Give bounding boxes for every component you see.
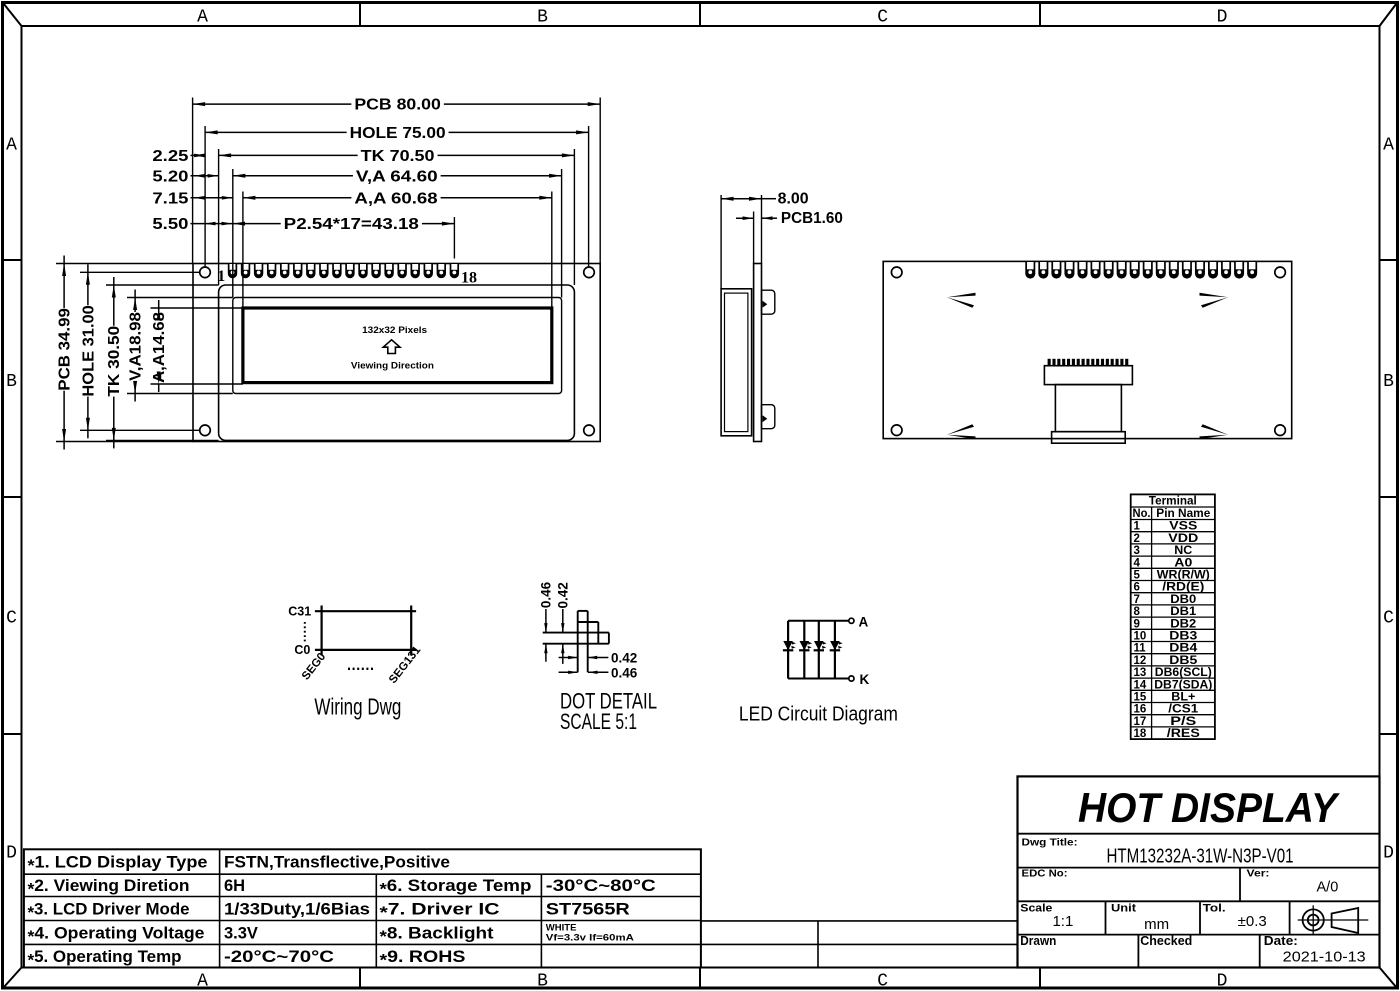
svg-text:HTM13232A-31W-N3P-V01: HTM13232A-31W-N3P-V01 bbox=[1107, 846, 1294, 868]
svg-text:16: 16 bbox=[1134, 704, 1147, 716]
svg-text:17: 17 bbox=[1134, 716, 1147, 728]
svg-text:11: 11 bbox=[1134, 643, 1147, 655]
svg-text:/RES: /RES bbox=[1167, 728, 1200, 740]
svg-text:LED Circuit Diagram: LED Circuit Diagram bbox=[739, 704, 898, 726]
svg-text:NC: NC bbox=[1174, 545, 1192, 557]
svg-text:2021-10-13: 2021-10-13 bbox=[1283, 949, 1366, 966]
svg-text:Scale: Scale bbox=[1020, 902, 1052, 914]
svg-text:C: C bbox=[1383, 609, 1394, 629]
svg-text:1/33Duty,1/6Bias: 1/33Duty,1/6Bias bbox=[224, 900, 370, 918]
svg-text:4: 4 bbox=[1134, 557, 1141, 569]
svg-text:K: K bbox=[860, 672, 870, 687]
svg-text:Ver:: Ver: bbox=[1247, 868, 1270, 880]
svg-text:132x32 Pixels: 132x32 Pixels bbox=[362, 325, 427, 336]
svg-text:A/0: A/0 bbox=[1317, 880, 1339, 896]
svg-text:/CS1: /CS1 bbox=[1168, 704, 1199, 716]
svg-text:0.46: 0.46 bbox=[539, 581, 554, 608]
svg-text:EDC No:: EDC No: bbox=[1022, 868, 1068, 880]
svg-text:14: 14 bbox=[1134, 679, 1147, 691]
svg-text:15: 15 bbox=[1134, 692, 1147, 704]
svg-text:DB0: DB0 bbox=[1170, 594, 1196, 606]
svg-text:B: B bbox=[537, 8, 548, 28]
svg-text:TK 70.50: TK 70.50 bbox=[361, 148, 435, 165]
svg-text:D: D bbox=[1217, 972, 1228, 991]
svg-text:A: A bbox=[197, 8, 208, 28]
svg-text:18: 18 bbox=[1134, 728, 1147, 740]
svg-text:PCB 34.99: PCB 34.99 bbox=[57, 308, 74, 391]
svg-text:5.50: 5.50 bbox=[152, 216, 188, 233]
svg-text:10: 10 bbox=[1134, 631, 1147, 643]
svg-text:ST7565R: ST7565R bbox=[546, 900, 630, 918]
svg-text:PCB1.60: PCB1.60 bbox=[781, 210, 843, 227]
svg-text:1: 1 bbox=[1134, 521, 1141, 533]
svg-text:B: B bbox=[537, 972, 548, 991]
svg-text:3: 3 bbox=[1134, 545, 1140, 557]
svg-text:Dwg Title:: Dwg Title: bbox=[1022, 837, 1078, 849]
svg-text:C: C bbox=[6, 609, 17, 629]
svg-text:Date:: Date: bbox=[1264, 934, 1298, 948]
svg-text:DB3: DB3 bbox=[1169, 631, 1197, 643]
svg-text:FSTN,Transflective,Positive: FSTN,Transflective,Positive bbox=[224, 854, 450, 872]
svg-text:6H: 6H bbox=[224, 877, 245, 895]
svg-text:VDD: VDD bbox=[1168, 533, 1198, 545]
svg-text:12: 12 bbox=[1134, 655, 1147, 667]
svg-text:B: B bbox=[1383, 372, 1394, 392]
svg-text:1:1: 1:1 bbox=[1052, 913, 1073, 930]
svg-text:C: C bbox=[877, 972, 888, 991]
svg-text:DB4: DB4 bbox=[1169, 643, 1198, 655]
svg-text:7.15: 7.15 bbox=[152, 190, 188, 207]
svg-text:HOT DISPLAY: HOT DISPLAY bbox=[1078, 784, 1340, 831]
svg-text:P/S: P/S bbox=[1170, 716, 1196, 728]
svg-text:C: C bbox=[877, 8, 888, 28]
svg-text:A: A bbox=[197, 972, 208, 991]
svg-text:D: D bbox=[6, 844, 17, 864]
svg-text:6: 6 bbox=[1134, 582, 1140, 594]
svg-text:A: A bbox=[859, 614, 869, 629]
svg-text:A0: A0 bbox=[1174, 557, 1192, 569]
svg-text:P2.54*17=43.18: P2.54*17=43.18 bbox=[284, 216, 420, 233]
svg-text:DB2: DB2 bbox=[1170, 618, 1196, 630]
svg-text:B: B bbox=[6, 372, 17, 392]
svg-text:V,A 64.60: V,A 64.60 bbox=[356, 168, 438, 185]
svg-text:/RD(E): /RD(E) bbox=[1162, 582, 1204, 594]
svg-text:SCALE 5:1: SCALE 5:1 bbox=[560, 709, 637, 734]
svg-text:A: A bbox=[6, 136, 17, 156]
svg-text:0.42: 0.42 bbox=[611, 651, 637, 666]
svg-text:2.25: 2.25 bbox=[152, 148, 188, 165]
svg-text:Viewing Direction: Viewing Direction bbox=[351, 361, 434, 372]
svg-text:WR(R/W): WR(R/W) bbox=[1157, 570, 1210, 582]
svg-text:TK 30.50: TK 30.50 bbox=[106, 326, 123, 397]
svg-text:C0: C0 bbox=[294, 643, 310, 657]
svg-text:A,A14.68: A,A14.68 bbox=[151, 312, 168, 383]
svg-text:13: 13 bbox=[1134, 667, 1147, 679]
svg-text:D: D bbox=[1383, 844, 1394, 864]
svg-text:Tol.: Tol. bbox=[1203, 902, 1226, 914]
svg-text:8.00: 8.00 bbox=[778, 191, 809, 208]
svg-text:PCB 80.00: PCB 80.00 bbox=[354, 97, 441, 114]
svg-text:-20°C~70°C: -20°C~70°C bbox=[224, 948, 334, 966]
svg-text:±0.3: ±0.3 bbox=[1238, 913, 1267, 930]
svg-text:Drawn: Drawn bbox=[1020, 934, 1056, 948]
svg-text:0.46: 0.46 bbox=[611, 665, 638, 680]
svg-text:Terminal: Terminal bbox=[1149, 496, 1197, 508]
svg-text:DB5: DB5 bbox=[1169, 655, 1198, 667]
svg-text:-30°C~80°C: -30°C~80°C bbox=[546, 877, 656, 895]
svg-text:D: D bbox=[1217, 8, 1228, 28]
svg-text:Vf=3.3v If=60mA: Vf=3.3v If=60mA bbox=[546, 933, 634, 944]
svg-text:V,A18.98: V,A18.98 bbox=[128, 312, 145, 381]
svg-text:DB1: DB1 bbox=[1170, 606, 1197, 618]
svg-text:DB7(SDA): DB7(SDA) bbox=[1154, 679, 1212, 691]
svg-text:A,A 60.68: A,A 60.68 bbox=[354, 190, 438, 207]
svg-text:5: 5 bbox=[1134, 570, 1141, 582]
svg-text:Pin Name: Pin Name bbox=[1156, 508, 1210, 520]
svg-text:DB6(SCL): DB6(SCL) bbox=[1155, 667, 1212, 679]
svg-text:2: 2 bbox=[1134, 533, 1140, 545]
svg-text:5.20: 5.20 bbox=[152, 168, 188, 185]
svg-text:BL+: BL+ bbox=[1171, 692, 1195, 704]
svg-text:3.3V: 3.3V bbox=[224, 924, 258, 942]
svg-text:VSS: VSS bbox=[1169, 521, 1197, 533]
svg-text:9: 9 bbox=[1134, 618, 1140, 630]
svg-text:No.: No. bbox=[1133, 508, 1151, 520]
svg-text:Unit: Unit bbox=[1111, 902, 1136, 914]
svg-text:A: A bbox=[1383, 136, 1394, 156]
svg-text:8: 8 bbox=[1134, 606, 1141, 618]
svg-text:HOLE 31.00: HOLE 31.00 bbox=[80, 305, 97, 396]
svg-text:Wiring Dwg: Wiring Dwg bbox=[314, 693, 401, 719]
svg-text:C31: C31 bbox=[288, 605, 311, 619]
svg-text:Checked: Checked bbox=[1140, 934, 1192, 948]
svg-text:18: 18 bbox=[461, 270, 477, 287]
svg-text:0.42: 0.42 bbox=[556, 582, 571, 608]
svg-text:7: 7 bbox=[1134, 594, 1140, 606]
svg-text:mm: mm bbox=[1144, 916, 1169, 933]
svg-text:HOLE 75.00: HOLE 75.00 bbox=[350, 125, 446, 142]
